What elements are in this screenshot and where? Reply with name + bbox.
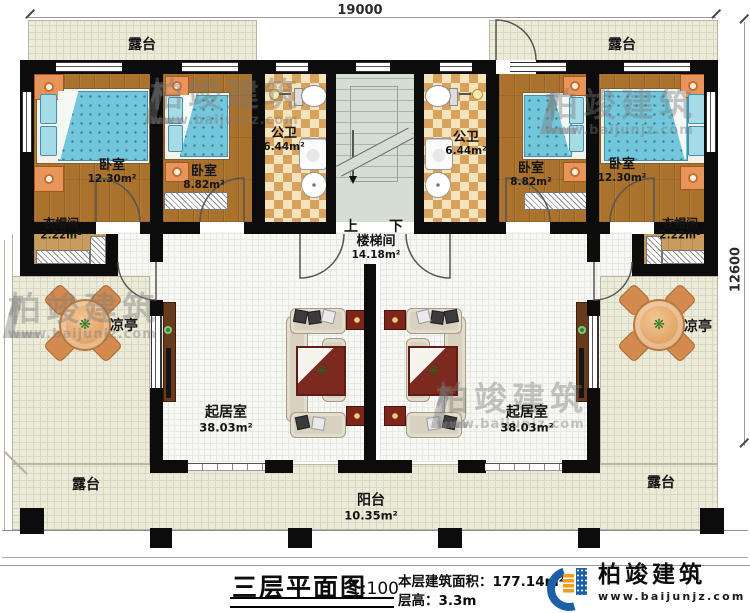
- wall: [550, 222, 610, 234]
- room-area: 6.44m²: [263, 141, 304, 153]
- room-area: 2.22m²: [659, 231, 700, 243]
- brand-logo: 柏竣建筑www.baijunjz.com: [547, 560, 746, 606]
- sofa-pillow: [307, 310, 322, 325]
- room-name: 公卫: [445, 131, 486, 146]
- room-name: 露台: [647, 476, 675, 492]
- room-name: 公卫: [263, 127, 304, 142]
- dimension-tick: [711, 9, 721, 19]
- dimension-top: 19000: [330, 3, 390, 18]
- wall: [106, 234, 118, 276]
- room-label-pavilion-left: 凉亭: [110, 319, 138, 335]
- lamp-stem: [459, 93, 471, 95]
- rug: ✳: [296, 346, 346, 396]
- room-name: 凉亭: [684, 320, 712, 336]
- lamp-icon: [472, 89, 483, 100]
- wall: [424, 222, 506, 234]
- plant-icon: ✳: [315, 362, 328, 380]
- room-area: 8.82m²: [183, 179, 224, 191]
- room-name: 卧室: [510, 162, 551, 177]
- room-label-stairwell: 楼梯间14.18m²: [352, 235, 401, 261]
- railing-line: [12, 234, 13, 530]
- pillow: [40, 94, 57, 124]
- pillow: [168, 125, 183, 152]
- pillar: [578, 528, 600, 548]
- plant-icon: [164, 326, 172, 334]
- sliding-door: [485, 463, 562, 471]
- room-name: 阳台: [344, 494, 397, 510]
- window: [624, 62, 690, 72]
- room-label-terrace-top-left: 露台: [128, 38, 156, 54]
- room-label-pavilion-right: 凉亭: [684, 320, 712, 336]
- floor-height-line: 层高：3.3m: [398, 589, 476, 609]
- room-label-living-left: 起居室38.03m²: [199, 406, 252, 435]
- toilet-icon: [301, 85, 327, 107]
- wall: [326, 60, 336, 234]
- wall: [338, 460, 412, 473]
- window: [182, 62, 238, 72]
- room-label-cloak-right: 衣帽间2.22m²: [659, 217, 700, 242]
- room-area: 2.22m²: [40, 231, 81, 243]
- room-area: 14.18m²: [352, 249, 401, 261]
- wall: [364, 264, 376, 473]
- room-name: 衣帽间: [659, 217, 700, 230]
- floor-height-value: 3.3m: [439, 593, 477, 609]
- room-name: 露台: [128, 38, 156, 54]
- logo-building-blue: [576, 568, 587, 595]
- sofa-pillow: [293, 309, 308, 324]
- wall: [244, 222, 336, 234]
- room-name: 卧室: [183, 165, 224, 180]
- room-area: 6.44m²: [445, 145, 486, 157]
- room-name: 卧室: [598, 158, 647, 173]
- wall: [587, 234, 600, 262]
- sofa-pillow: [430, 310, 445, 325]
- flower-icon: ❋: [653, 317, 665, 333]
- window: [510, 62, 566, 72]
- sofa-pillow: [295, 415, 310, 430]
- window: [356, 62, 390, 72]
- room-label-terrace-top-right: 露台: [608, 38, 636, 54]
- room-area: 38.03m²: [199, 421, 252, 434]
- room-label-bedroom2: 卧室8.82m²: [183, 165, 224, 191]
- wall: [587, 388, 600, 462]
- wall: [587, 300, 600, 316]
- wall: [150, 460, 188, 473]
- pillar: [20, 508, 44, 534]
- watermark: 柏竣建筑www.baijunjz.com: [150, 78, 302, 128]
- room-area: 12.30m²: [598, 172, 647, 184]
- dimension-line-right: [744, 22, 745, 446]
- brand-name: 柏竣建筑: [598, 564, 746, 587]
- door-arc: [406, 234, 450, 278]
- pillar: [150, 528, 172, 548]
- window: [706, 92, 716, 152]
- room-name: 起居室: [500, 406, 553, 422]
- wall: [414, 60, 424, 234]
- window: [22, 92, 32, 152]
- pillar: [438, 528, 462, 548]
- window: [440, 62, 472, 72]
- room-label-living-right: 起居室38.03m²: [500, 406, 553, 435]
- room-name: 衣帽间: [40, 217, 81, 230]
- wall: [486, 60, 499, 234]
- door-arc: [594, 262, 632, 300]
- room-label-bedroom1: 卧室12.30m²: [88, 159, 137, 185]
- round-table: ❋: [633, 299, 685, 351]
- sink-icon: [425, 172, 451, 198]
- sliding-door: [188, 463, 265, 471]
- wall: [562, 460, 600, 473]
- brand-logo-icon: [547, 560, 591, 606]
- wall: [265, 460, 293, 473]
- sofa-pillow: [311, 416, 326, 431]
- dimension-right: 12600: [729, 240, 744, 300]
- room-label-terrace-bottom-left: 露台: [72, 478, 100, 494]
- wall: [150, 234, 163, 262]
- brand-text: 柏竣建筑www.baijunjz.com: [598, 564, 746, 603]
- room-label-balcony: 阳台10.35m²: [344, 494, 397, 523]
- pillar: [700, 508, 724, 534]
- wall: [20, 264, 118, 276]
- door-arc: [610, 178, 654, 222]
- slab-edge: [2, 530, 748, 558]
- pillar: [288, 528, 312, 548]
- tv-icon: [166, 348, 171, 398]
- sink-icon: [301, 172, 327, 198]
- closet: [36, 250, 90, 264]
- wall: [140, 222, 200, 234]
- side-table: [384, 406, 406, 426]
- closet: [90, 236, 106, 266]
- room-area: 8.82m²: [510, 176, 551, 188]
- wall: [632, 264, 718, 276]
- drawing-scale: 1:100: [350, 579, 399, 599]
- room-label-terrace-bottom-right: 露台: [647, 476, 675, 492]
- window: [56, 62, 122, 72]
- railing-line: [4, 240, 5, 530]
- room-name: 凉亭: [110, 319, 138, 335]
- room-label-bath-left: 公卫6.44m²: [263, 127, 304, 153]
- floor-height-label: 层高：: [398, 593, 439, 609]
- floor-area-label: 本层建筑面积：: [398, 574, 493, 590]
- room-name: 楼梯间: [352, 235, 401, 250]
- bed-sheet: [58, 91, 88, 159]
- room-label-bath-right: 公卫6.44m²: [445, 131, 486, 157]
- window: [588, 316, 599, 388]
- stair-direction-arrow: [349, 176, 357, 184]
- door-arc: [496, 20, 536, 60]
- floor-plan: 19000 12600: [0, 0, 750, 613]
- plant-icon: ✳: [427, 362, 440, 380]
- floor-area-line: 本层建筑面积：177.14m²: [398, 570, 565, 590]
- wall: [150, 388, 163, 462]
- room-label-bedroom3: 卧室8.82m²: [510, 162, 551, 188]
- plant-icon: [578, 326, 586, 334]
- logo-building-orange: [563, 574, 574, 594]
- room-label-bedroom4: 卧室12.30m²: [598, 158, 647, 184]
- room-name: 卧室: [88, 159, 137, 174]
- room-name: 露台: [608, 38, 636, 54]
- room-area: 10.35m²: [344, 509, 397, 522]
- pillow: [40, 126, 57, 156]
- wall: [458, 460, 486, 473]
- window: [276, 62, 308, 72]
- door-arc: [300, 234, 344, 278]
- room-name: 露台: [72, 478, 100, 494]
- wall: [632, 234, 644, 276]
- toilet-icon: [425, 85, 451, 107]
- room-area: 12.30m²: [88, 173, 137, 185]
- room-name: 起居室: [199, 406, 252, 422]
- room-area: 38.03m²: [500, 421, 553, 434]
- brand-url: www.baijunjz.com: [598, 590, 746, 603]
- watermark: 柏竣建筑www.baijunjz.com: [545, 88, 697, 138]
- sofa-pillow: [444, 309, 459, 324]
- side-table: [384, 310, 406, 330]
- nightstand: [34, 166, 64, 192]
- nightstand: [563, 162, 587, 182]
- room-label-cloak-left: 衣帽间2.22m²: [40, 217, 81, 242]
- nightstand: [680, 166, 706, 190]
